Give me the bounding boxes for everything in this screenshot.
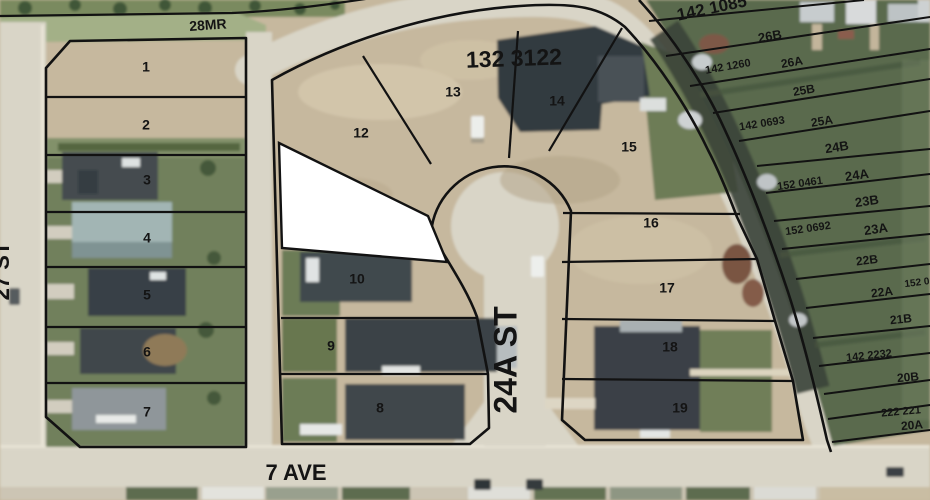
house-wing-lot13-14 (598, 56, 644, 102)
house-top-lot18 (620, 320, 682, 332)
label-street-24a-st: 24A ST (487, 306, 523, 414)
label-lot-19: 19 (672, 400, 688, 416)
house-roof-lot9 (345, 318, 497, 372)
house-roof-lot4-edge (72, 242, 172, 258)
label-street-27-st: 27 ST (0, 241, 14, 300)
label-lot-16: 16 (643, 215, 659, 231)
house-trim-lot5 (150, 272, 166, 280)
map-canvas: 28MR132 3122142 108524A ST7 AVE27 ST1234… (0, 0, 930, 500)
house-trim-lot10 (306, 258, 319, 282)
label-lot-20a: 20A (900, 417, 923, 433)
road-7-ave (0, 445, 930, 487)
label-lot-8: 8 (376, 400, 384, 416)
house-roof-lot7 (72, 388, 166, 430)
house-roof-lot5 (88, 268, 186, 316)
aerial-imagery (0, 0, 930, 500)
label-lot-22a: 22A (870, 284, 894, 301)
label-lot-6: 6 (143, 344, 151, 360)
sidewalk-left (41, 25, 44, 480)
label-lot-17: 17 (659, 280, 675, 296)
label-lot-13: 13 (445, 84, 461, 100)
label-lot-22b: 22B (855, 252, 879, 269)
label-lot-5: 5 (143, 287, 151, 303)
aerial-plat-map: 28MR132 3122142 108524A ST7 AVE27 ST1234… (0, 0, 930, 500)
road-between-blocks (246, 32, 272, 446)
label-lot-9: 9 (327, 338, 335, 354)
driveway-lot18 (690, 369, 790, 376)
label-lot-12: 12 (353, 125, 369, 141)
house-trim-lot7 (96, 415, 136, 423)
label-lot-3: 3 (143, 172, 151, 188)
label-lot-2: 2 (142, 117, 150, 133)
driveway-lot18-west (545, 398, 595, 409)
label-lot-10: 10 (349, 271, 365, 287)
house-trim-lot3 (122, 158, 140, 167)
label-lot-1: 1 (142, 59, 150, 75)
label-lot-20b: 20B (896, 369, 919, 385)
label-lot-21b: 21B (889, 311, 913, 327)
hedge-row (58, 143, 240, 151)
car-shadow (471, 138, 484, 143)
garage-lot3 (78, 170, 98, 194)
label-plan-132-3122: 132 3122 (466, 43, 563, 72)
label-lot-14: 14 (549, 93, 565, 109)
label-street-7-ave: 7 AVE (265, 460, 326, 485)
car-on-24a-st (531, 256, 544, 277)
house-trim-lot19 (640, 430, 670, 438)
label-lot-15: 15 (621, 139, 637, 155)
house-roof-lot8 (345, 384, 465, 440)
driveway-lot14 (640, 98, 666, 111)
house-trim-lot8 (300, 424, 342, 435)
label-lot-7: 7 (143, 404, 151, 420)
car-near-cul-de-sac (471, 116, 484, 138)
label-lot-4: 4 (143, 230, 151, 246)
label-lot-18: 18 (662, 339, 678, 355)
label-28mr: 28MR (189, 15, 227, 34)
